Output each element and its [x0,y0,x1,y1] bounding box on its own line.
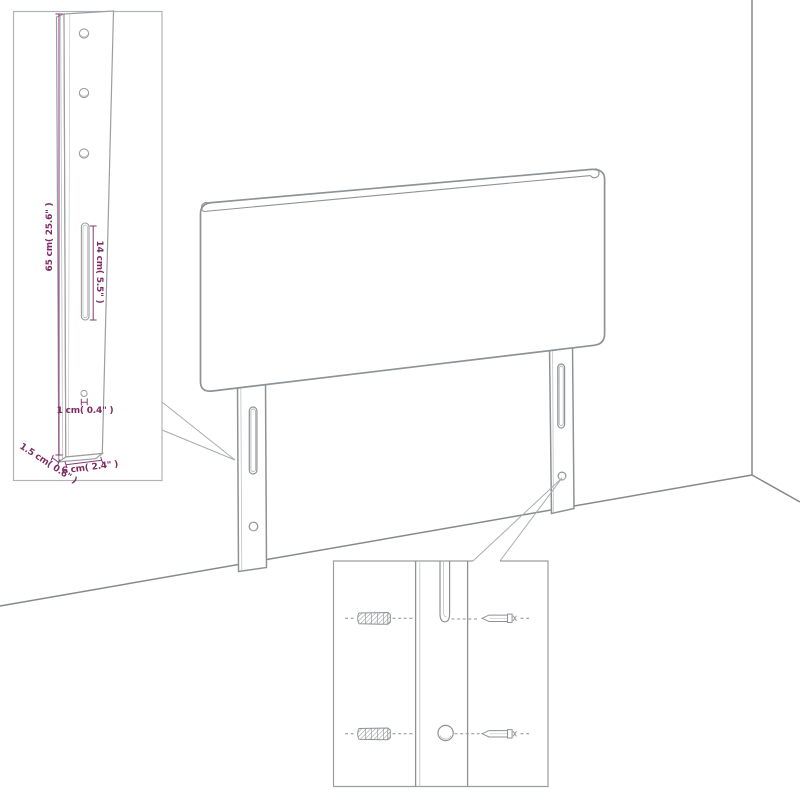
hole-dimension-label: 1 cm( 0.4" ) [57,406,114,416]
headboard-mounting-diagram: 65 cm( 25.6" ) 14 cm( 5.5" ) 1 cm( 0.4" … [0,0,800,800]
wall-plug-icon [358,728,391,740]
headboard-panel [201,169,605,391]
closeup-hole [438,725,453,740]
slot-dimension-label: 14 cm( 5.5" ) [94,241,104,304]
leader-lines-leg-detail [162,402,235,460]
left-leg [238,382,267,572]
leader-lines-mount-detail [473,478,562,561]
wall-plug-icon [358,613,391,625]
diagram-line-art [0,0,800,800]
height-dimension-label: 65 cm( 25.6" ) [45,203,55,272]
post-slot [81,223,89,320]
mount-detail-inset-border [334,561,549,787]
floor-wall-edge-right [752,475,800,502]
right-leg [550,344,575,514]
mount-detail-inset [334,561,549,787]
